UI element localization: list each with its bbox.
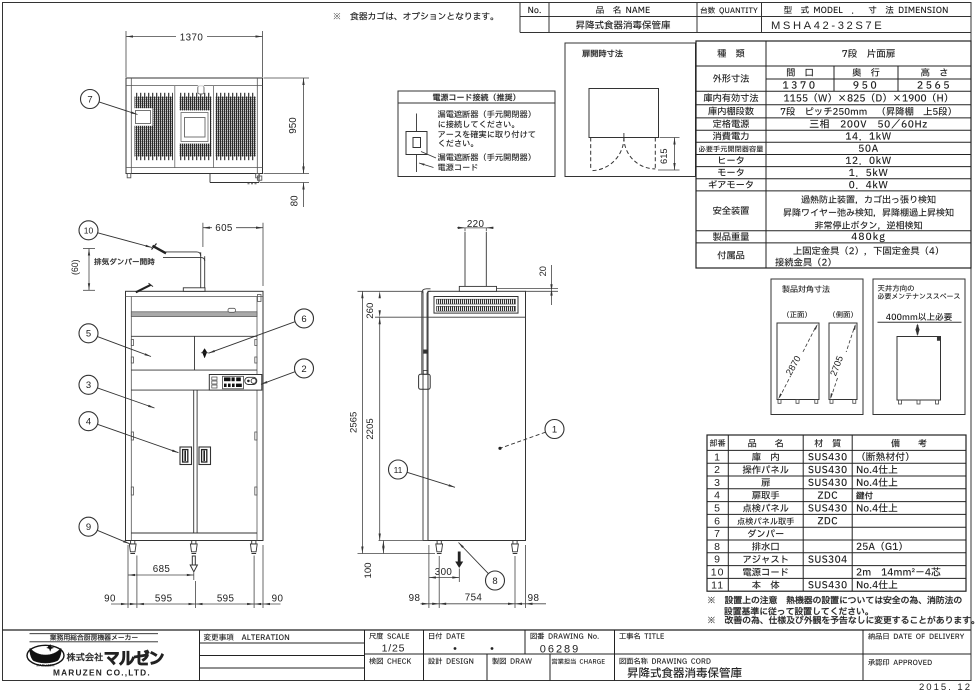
svg-text:10: 10	[84, 226, 94, 236]
svg-text:100: 100	[363, 562, 374, 578]
svg-text:1/25: 1/25	[382, 643, 406, 655]
svg-text:950: 950	[288, 117, 299, 134]
svg-text:4: 4	[86, 417, 91, 428]
svg-text:20: 20	[538, 266, 548, 276]
svg-text:2: 2	[714, 464, 721, 476]
svg-text:MSHA42-32S7E: MSHA42-32S7E	[771, 20, 884, 32]
svg-text:7: 7	[714, 528, 721, 540]
svg-text:3: 3	[86, 380, 91, 391]
svg-text:7: 7	[87, 94, 92, 105]
svg-text:90: 90	[272, 593, 284, 604]
svg-text:06289: 06289	[540, 644, 581, 656]
svg-text:2: 2	[301, 364, 306, 375]
svg-text:685: 685	[153, 564, 171, 575]
svg-text:595: 595	[155, 593, 173, 604]
svg-text:8: 8	[714, 541, 721, 553]
svg-text:98: 98	[409, 593, 421, 604]
svg-text:1: 1	[552, 424, 557, 435]
svg-text:8: 8	[492, 576, 497, 587]
svg-text:98: 98	[528, 593, 540, 604]
svg-text:4: 4	[714, 490, 721, 502]
svg-text:220: 220	[467, 219, 485, 230]
svg-text:6: 6	[301, 314, 306, 325]
svg-text:90: 90	[104, 593, 116, 604]
svg-text:605: 605	[215, 223, 233, 234]
svg-text:3: 3	[714, 477, 721, 489]
svg-text:MARUZEN CO.,LTD.: MARUZEN CO.,LTD.	[53, 668, 151, 678]
svg-text:10: 10	[711, 567, 725, 579]
svg-text:5: 5	[714, 503, 721, 515]
svg-text:9: 9	[714, 554, 721, 566]
svg-text:754: 754	[465, 593, 483, 604]
svg-text:300: 300	[435, 567, 453, 578]
svg-text:2565: 2565	[349, 412, 360, 433]
svg-text:80: 80	[290, 195, 301, 206]
svg-text:2015. 12: 2015. 12	[919, 682, 972, 692]
svg-text:6: 6	[714, 515, 721, 527]
svg-text:1: 1	[714, 451, 721, 463]
svg-text:9: 9	[86, 522, 91, 533]
svg-text:1370: 1370	[180, 32, 204, 43]
svg-text:615: 615	[659, 148, 669, 164]
svg-text:(60): (60)	[70, 259, 80, 275]
svg-text:11: 11	[394, 465, 403, 475]
svg-text:5: 5	[86, 329, 91, 340]
svg-text:11: 11	[711, 579, 724, 591]
svg-text:595: 595	[217, 593, 235, 604]
svg-text:2205: 2205	[365, 418, 376, 439]
svg-text:260: 260	[365, 303, 376, 319]
